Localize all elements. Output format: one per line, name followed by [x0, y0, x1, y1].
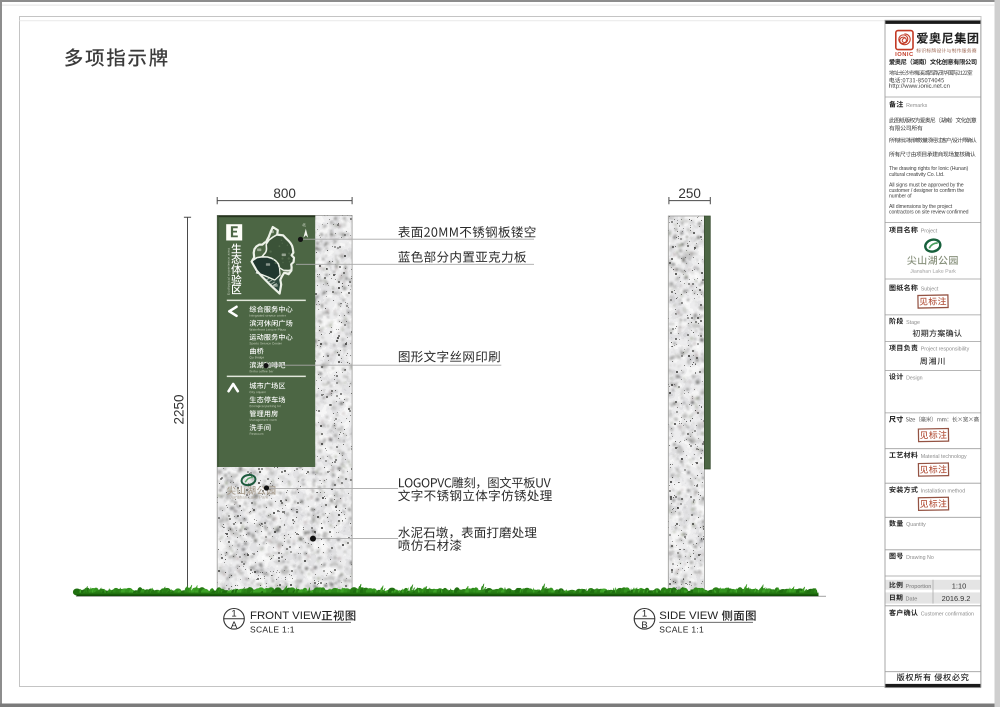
- svg-text:Stage: Stage: [906, 320, 920, 326]
- svg-text:Installation method: Installation method: [921, 488, 966, 494]
- svg-text:FRONT VIEW: FRONT VIEW: [250, 610, 322, 622]
- svg-text:Subject: Subject: [921, 287, 939, 293]
- svg-text:cultural creativity Co. Ltd.: cultural creativity Co. Ltd.: [889, 172, 944, 178]
- svg-text:250: 250: [678, 186, 701, 201]
- svg-text:SCALE 1:1: SCALE 1:1: [659, 624, 704, 634]
- svg-text:1: 1: [231, 609, 236, 620]
- svg-text:2016.9.2: 2016.9.2: [942, 594, 971, 603]
- svg-text:1: 1: [642, 609, 647, 620]
- svg-text:contractors on site review con: contractors on site review confirmed: [889, 210, 969, 216]
- svg-text:B: B: [641, 620, 647, 631]
- svg-text:Proportion: Proportion: [906, 584, 932, 590]
- svg-text:IONIC: IONIC: [895, 52, 914, 58]
- svg-text:Project: Project: [921, 229, 938, 235]
- svg-text:Project responsibility: Project responsibility: [921, 347, 970, 353]
- svg-text:SCALE 1:1: SCALE 1:1: [250, 624, 295, 634]
- svg-text:Quantity: Quantity: [906, 522, 926, 528]
- svg-text:A: A: [231, 620, 238, 631]
- svg-text:1:10: 1:10: [952, 581, 966, 590]
- svg-text:Remarks: Remarks: [906, 103, 928, 109]
- svg-text:number of: number of: [889, 194, 912, 200]
- svg-text:Customer confirmation: Customer confirmation: [921, 612, 974, 618]
- svg-text:Drawing No: Drawing No: [906, 555, 934, 561]
- svg-text:Date: Date: [906, 597, 918, 603]
- svg-text:SIDE VIEW: SIDE VIEW: [659, 610, 718, 622]
- svg-text:800: 800: [273, 186, 296, 201]
- svg-text:2250: 2250: [171, 394, 186, 424]
- svg-text:Material technology: Material technology: [921, 454, 967, 460]
- svg-text:Design: Design: [906, 375, 923, 381]
